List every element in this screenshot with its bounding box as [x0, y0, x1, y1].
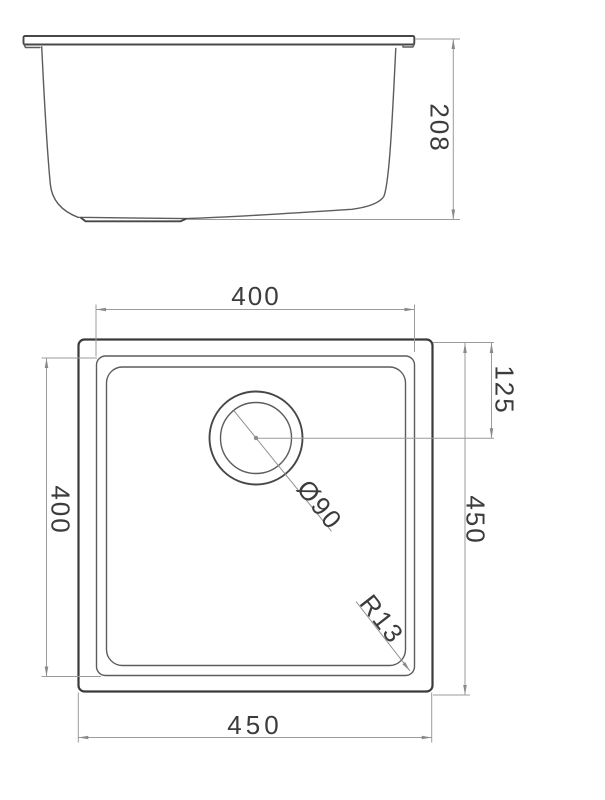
- arrowhead: [422, 736, 432, 740]
- side-view: 208: [24, 36, 461, 221]
- arrowhead: [452, 39, 456, 49]
- arrowhead: [490, 428, 494, 438]
- arrowhead: [45, 358, 49, 368]
- dim-overall-width-label: 450: [227, 710, 282, 740]
- drawing-canvas: 208 Ø90 R13 400: [0, 0, 605, 800]
- sink-body-outline: [42, 47, 396, 219]
- arrowhead: [490, 343, 494, 353]
- sink-technical-drawing: 208 Ø90 R13 400: [0, 0, 605, 800]
- arrowhead: [452, 210, 456, 220]
- arrowhead: [402, 662, 410, 671]
- arrowhead: [45, 667, 49, 677]
- dim-drain-offset-label: 125: [490, 365, 520, 414]
- dim-bowl-height-label: 400: [46, 485, 76, 534]
- arrowhead: [96, 308, 106, 312]
- dim-depth-label: 208: [425, 103, 455, 152]
- arrowhead: [463, 343, 467, 353]
- bowl-top-edge: [97, 356, 415, 676]
- dim-overall-height-label: 450: [461, 495, 491, 544]
- arrowhead: [78, 736, 88, 740]
- plan-view: Ø90 R13 400 400 4: [42, 281, 520, 743]
- dim-corner-radius-label: R13: [354, 589, 411, 650]
- dim-drain-diameter-label: Ø90: [291, 474, 349, 536]
- arrowhead: [405, 308, 415, 312]
- rim-flange: [24, 36, 415, 45]
- dim-bowl-width-label: 400: [231, 281, 280, 311]
- bowl-bottom-edge: [107, 367, 406, 666]
- arrowhead: [463, 685, 467, 695]
